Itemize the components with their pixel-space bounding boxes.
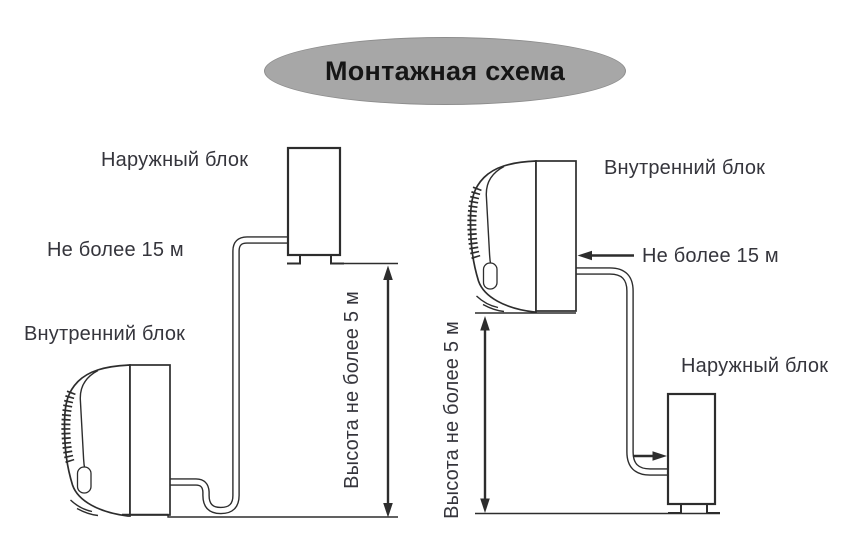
indoor-unit-left (65, 365, 171, 516)
pipe-outline (170, 240, 288, 511)
outdoor-unit-label-left: Наружный блок (101, 149, 248, 172)
arrow-left-head (578, 251, 593, 261)
refrigerant-pipe-left (170, 240, 288, 511)
arrow-right-head (653, 451, 668, 461)
outdoor-unit-left (288, 148, 340, 255)
height-limit-label-left: Высота не более 5 м (342, 291, 362, 489)
pipe-length-label-left: Не более 15 м (47, 239, 184, 262)
pipe-entry-arrow-right (633, 451, 667, 461)
outdoor-unit-label-right: Наружный блок (681, 355, 828, 378)
pipe-outline (576, 271, 668, 472)
height-limit-label-right: Высота не более 5 м (442, 321, 462, 519)
arrow-down-head (480, 499, 490, 514)
outdoor-unit-right-feet (668, 504, 720, 513)
page-title: Монтажная схема (325, 56, 565, 87)
pipe-length-arrow-right (578, 251, 635, 261)
arrow-up-head (383, 266, 393, 281)
right-scheme (471, 161, 721, 514)
height-dimension-arrow-right (480, 316, 490, 513)
indoor-unit-right (471, 161, 577, 312)
diagram-title-bubble: Монтажная схема (264, 37, 626, 105)
indoor-unit-label-left: Внутренний блок (24, 323, 185, 346)
outdoor-unit-left-feet (287, 255, 344, 264)
installation-scheme-page: Монтажная схема Наружный блок Не более 1… (0, 0, 866, 547)
arrow-up-head (480, 316, 490, 331)
pipe-core (576, 271, 668, 472)
arrow-down-head (383, 503, 393, 518)
outdoor-unit-right (668, 394, 715, 504)
pipe-core (170, 240, 288, 511)
refrigerant-pipe-right (576, 271, 668, 472)
indoor-unit-label-right: Внутренний блок (604, 157, 765, 180)
height-dimension-arrow-left (383, 266, 393, 518)
pipe-length-label-right: Не более 15 м (642, 245, 779, 268)
